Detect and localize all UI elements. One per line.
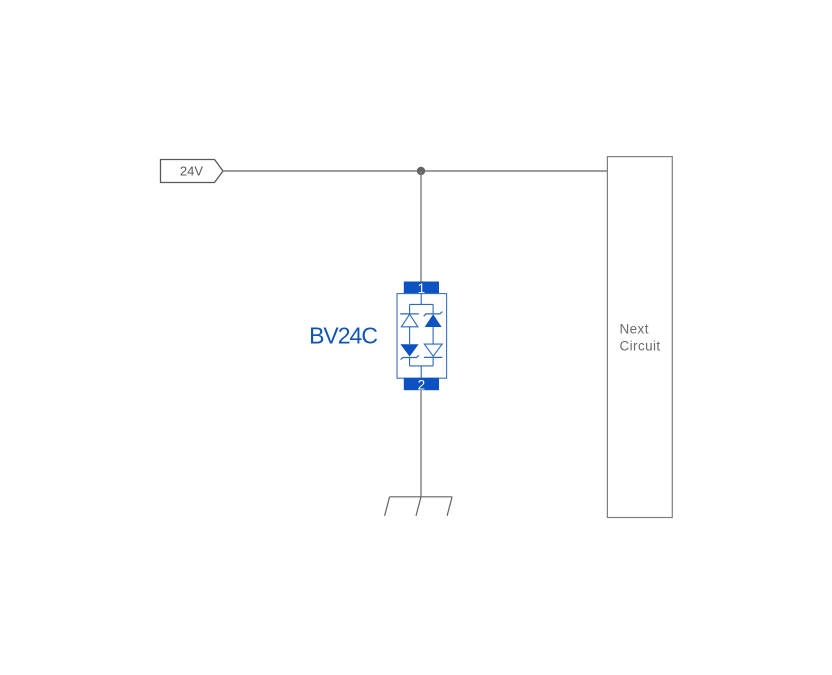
svg-text:Circuit: Circuit [620,338,661,353]
svg-text:Next: Next [620,322,649,337]
svg-text:24V: 24V [180,164,203,179]
svg-text:2: 2 [418,377,426,392]
svg-text:BV24C: BV24C [309,322,377,348]
